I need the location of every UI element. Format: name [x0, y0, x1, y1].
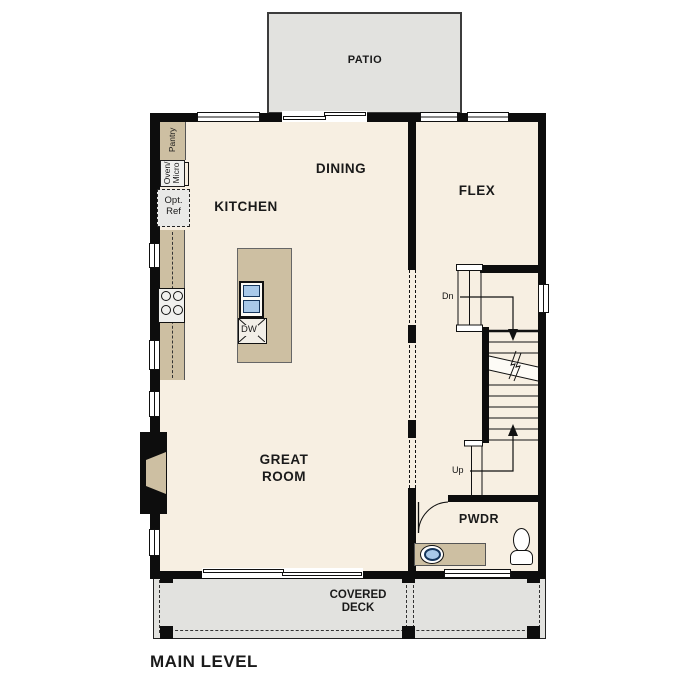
- wall-post: [408, 420, 416, 438]
- stairs: [440, 255, 548, 500]
- opt-ref-label: Opt. Ref: [160, 196, 187, 218]
- room-label-pwdr: PWDR: [459, 512, 499, 526]
- wall-interior-upper: [408, 122, 416, 270]
- stair-dn-label: Dn: [442, 291, 454, 301]
- toilet-base: [510, 550, 533, 565]
- vanity-sink-basin: [424, 548, 441, 561]
- room-label-great-room: GREAT ROOM: [260, 452, 309, 486]
- island-sink: [239, 281, 264, 318]
- toilet-icon: [508, 528, 534, 566]
- sink-basin: [243, 285, 260, 297]
- room-label-patio: PATIO: [348, 54, 382, 67]
- room-label-flex: FLEX: [459, 183, 496, 199]
- window: [420, 112, 458, 122]
- window: [149, 340, 160, 370]
- toilet-bowl: [513, 528, 530, 552]
- floorplan: PATIO COVERED DECK P: [0, 0, 687, 687]
- up-arrowhead: [508, 424, 518, 436]
- sliding-door: [202, 568, 363, 578]
- dishwasher-label: DW: [240, 325, 258, 336]
- plan-title: MAIN LEVEL: [150, 652, 258, 672]
- window: [467, 112, 509, 122]
- deck-post: [402, 626, 415, 639]
- deck-dashed-line: [160, 630, 540, 631]
- burner: [161, 291, 171, 301]
- deck-dashed-line: [539, 575, 540, 633]
- oven-micro-label: Oven/ Micro: [163, 155, 181, 191]
- window: [149, 391, 160, 417]
- open-rail-dashed: [415, 270, 416, 488]
- room-label-dining: DINING: [316, 161, 366, 177]
- dishwasher: DW: [238, 318, 267, 344]
- room-label-kitchen: KITCHEN: [214, 199, 278, 215]
- burner: [161, 305, 171, 315]
- dn-arrowhead: [508, 329, 518, 341]
- door-panel: [203, 569, 284, 573]
- pwdr-door-arc: [418, 502, 448, 533]
- deck-post: [527, 626, 540, 639]
- deck-dashed-line: [406, 575, 407, 633]
- door-panel: [324, 112, 366, 116]
- up-railing: [465, 441, 483, 498]
- door-panel: [283, 116, 326, 120]
- door-panel: [282, 572, 362, 576]
- burner: [173, 291, 183, 301]
- pantry-label: Pantry: [168, 122, 178, 158]
- window: [149, 529, 160, 556]
- pwdr-door: [408, 495, 453, 540]
- window: [149, 243, 160, 268]
- wall-post: [408, 325, 416, 343]
- dn-railing: [457, 265, 483, 332]
- stair-treads: [489, 331, 538, 440]
- stair-up-label: Up: [452, 465, 464, 475]
- oven-micro-bracket: [185, 162, 189, 186]
- sink-basin: [243, 300, 260, 313]
- open-rail-dashed: [409, 270, 410, 488]
- burner: [173, 305, 183, 315]
- deck-dashed-line: [413, 575, 414, 633]
- sliding-door: [282, 111, 367, 122]
- window: [197, 112, 260, 122]
- deck-post: [160, 626, 173, 639]
- room-label-covered-deck: COVERED DECK: [330, 589, 387, 615]
- deck-dashed-line: [159, 575, 160, 633]
- window: [444, 569, 511, 578]
